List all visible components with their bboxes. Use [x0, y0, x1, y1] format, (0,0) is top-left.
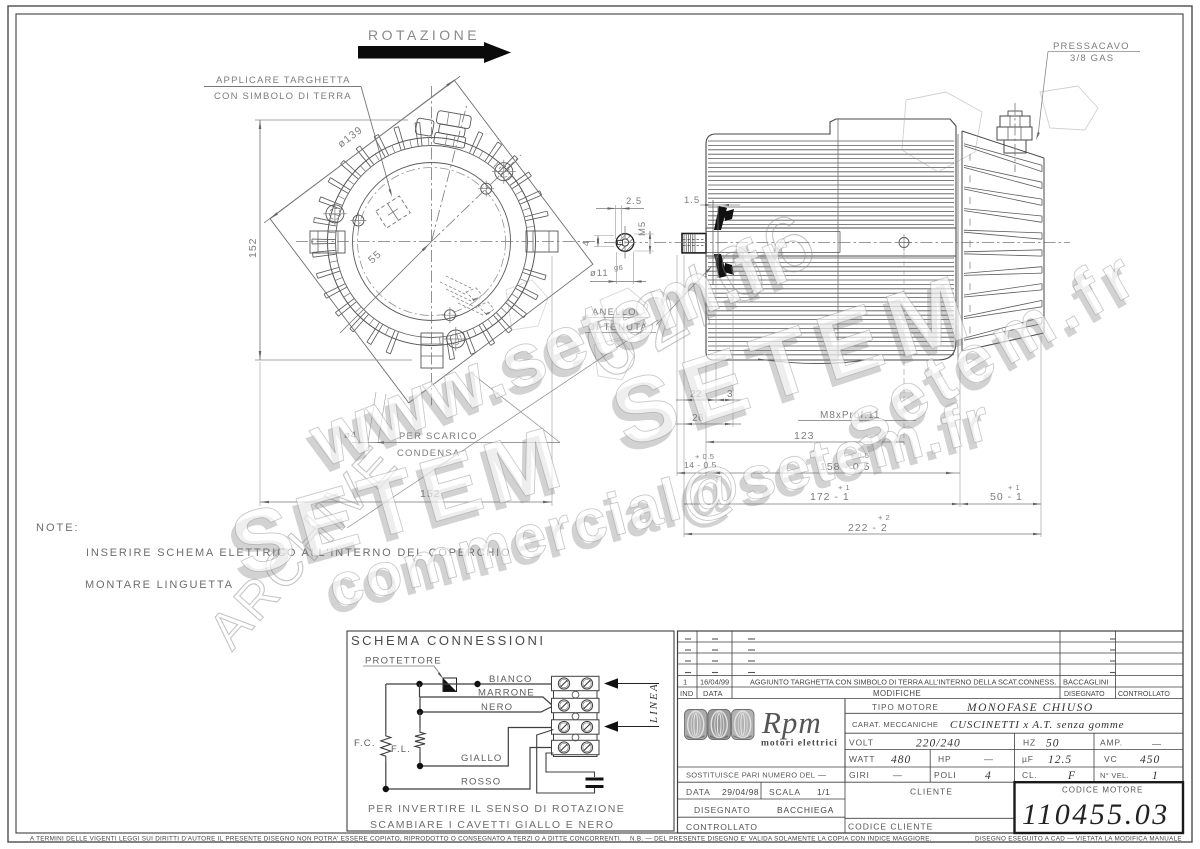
svg-text:220/240: 220/240 [916, 738, 961, 750]
svg-text:16/04/99: 16/04/99 [700, 678, 729, 687]
svg-text:1: 1 [683, 678, 687, 687]
svg-text:F: F [1067, 770, 1076, 782]
svg-text:ø11: ø11 [590, 268, 609, 279]
svg-text:DISEGNATO: DISEGNATO [1064, 691, 1105, 698]
svg-text:CLIENTE: CLIENTE [910, 787, 953, 797]
svg-text:Rpm: Rpm [761, 705, 822, 740]
svg-text:—: — [818, 771, 826, 780]
svg-text:—: — [1152, 739, 1161, 749]
svg-text:29/04/98: 29/04/98 [722, 787, 759, 797]
svg-text:NOTE:: NOTE: [36, 522, 80, 534]
svg-text:—: — [893, 770, 902, 780]
svg-text:CL.: CL. [1022, 770, 1038, 780]
svg-text:AGGIUNTO TARGHETTA CON SIMBOLO: AGGIUNTO TARGHETTA CON SIMBOLO DI TERRA … [750, 678, 1056, 687]
svg-text:+ 1: + 1 [1008, 483, 1020, 492]
svg-text:VOLT: VOLT [849, 738, 874, 748]
svg-text:MARRONE: MARRONE [478, 688, 535, 699]
svg-text:motori elettrici: motori elettrici [761, 739, 838, 749]
svg-text:VC: VC [1104, 754, 1117, 764]
svg-text:BACCHIEGA: BACCHIEGA [777, 805, 834, 815]
svg-text:DATA: DATA [686, 787, 711, 797]
svg-text:4: 4 [581, 240, 592, 246]
svg-text:110455.03: 110455.03 [1022, 798, 1170, 831]
svg-text:µF: µF [1022, 754, 1034, 764]
svg-text:CON SIMBOLO DI TERRA: CON SIMBOLO DI TERRA [214, 91, 352, 102]
svg-text:WATT: WATT [849, 754, 875, 764]
svg-text:PRESSACAVO: PRESSACAVO [1053, 41, 1130, 52]
svg-text:F.C.: F.C. [354, 738, 376, 749]
svg-text:N° VEL.: N° VEL. [1100, 771, 1129, 780]
svg-text:HZ: HZ [1023, 738, 1036, 748]
svg-text:NERO: NERO [481, 702, 513, 713]
svg-text:APPLICARE TARGHETTA: APPLICARE TARGHETTA [216, 75, 351, 86]
svg-text:50: 50 [1046, 738, 1060, 750]
svg-text:480: 480 [891, 754, 911, 766]
svg-text:SCAMBIARE I CAVETTI GIALLO E N: SCAMBIARE I CAVETTI GIALLO E NERO [370, 819, 614, 831]
svg-text:CONTROLLATO: CONTROLLATO [1118, 691, 1170, 698]
svg-text:1.5: 1.5 [684, 195, 700, 206]
svg-text:SOSTITUISCE PARI NUMERO DEL: SOSTITUISCE PARI NUMERO DEL [686, 771, 815, 780]
svg-text:MODIFICHE: MODIFICHE [873, 689, 921, 698]
svg-text:PROTETTORE: PROTETTORE [365, 656, 442, 667]
svg-text:MONOFASE CHIUSO: MONOFASE CHIUSO [966, 702, 1094, 714]
svg-text:SCALA: SCALA [769, 787, 801, 797]
svg-text:IND: IND [680, 689, 694, 698]
svg-text:SCHEMA CONNESSIONI: SCHEMA CONNESSIONI [351, 633, 546, 648]
svg-text:HP: HP [938, 754, 951, 764]
svg-text:152: 152 [247, 237, 259, 258]
svg-text:222 - 2: 222 - 2 [848, 522, 888, 534]
svg-text:CARAT. MECCANICHE: CARAT. MECCANICHE [852, 720, 938, 729]
svg-text:CONTROLLATO: CONTROLLATO [686, 822, 758, 832]
svg-text:A TERMINI DELLE VIGENTI LEGGI: A TERMINI DELLE VIGENTI LEGGI SUI DIRITT… [30, 836, 622, 843]
svg-text:1: 1 [1152, 770, 1159, 782]
svg-text:DATA: DATA [703, 689, 723, 698]
svg-text:GIRI: GIRI [849, 770, 870, 780]
svg-text:—: — [984, 754, 993, 764]
svg-text:2.5: 2.5 [626, 196, 642, 207]
svg-text:PER INVERTIRE IL SENSO DI ROTA: PER INVERTIRE IL SENSO DI ROTAZIONE [368, 803, 625, 815]
svg-text:450: 450 [1140, 754, 1160, 766]
svg-text:+ 2: + 2 [878, 513, 890, 522]
svg-text:LINEA: LINEA [648, 682, 660, 724]
svg-text:CODICE MOTORE: CODICE MOTORE [1062, 786, 1143, 795]
svg-text:ROTAZIONE: ROTAZIONE [368, 27, 480, 43]
svg-text:AMP.: AMP. [1100, 738, 1123, 748]
svg-text:ROSSO: ROSSO [461, 777, 501, 788]
svg-text:3/8 GAS: 3/8 GAS [1070, 53, 1114, 64]
svg-text:DISEGNO ESEGUITO A CAD — VIETA: DISEGNO ESEGUITO A CAD — VIETATA LA MODI… [975, 836, 1182, 843]
svg-text:4: 4 [985, 770, 992, 782]
svg-text:TIPO MOTORE: TIPO MOTORE [872, 703, 939, 712]
svg-text:BIANCO: BIANCO [489, 674, 533, 685]
svg-text:N.B. — DEL PRESENTE DISEGNO E': N.B. — DEL PRESENTE DISEGNO E' VALIDA SO… [630, 836, 932, 843]
svg-text:50 - 1: 50 - 1 [990, 491, 1023, 503]
svg-text:g6: g6 [614, 263, 623, 272]
svg-text:CODICE CLIENTE: CODICE CLIENTE [848, 822, 933, 832]
svg-text:F.L.: F.L. [391, 744, 411, 755]
svg-text:CUSCINETTI x A.T. senza gomme: CUSCINETTI x A.T. senza gomme [950, 719, 1124, 731]
svg-text:GIALLO: GIALLO [461, 753, 503, 764]
svg-text:POLI: POLI [934, 770, 957, 780]
svg-text:DISEGNATO: DISEGNATO [694, 805, 750, 815]
svg-text:1/1: 1/1 [817, 787, 830, 797]
svg-text:BACCAGLINI: BACCAGLINI [1063, 678, 1108, 687]
svg-text:MONTARE LINGUETTA: MONTARE LINGUETTA [85, 579, 234, 591]
svg-text:12.5: 12.5 [1048, 754, 1072, 766]
